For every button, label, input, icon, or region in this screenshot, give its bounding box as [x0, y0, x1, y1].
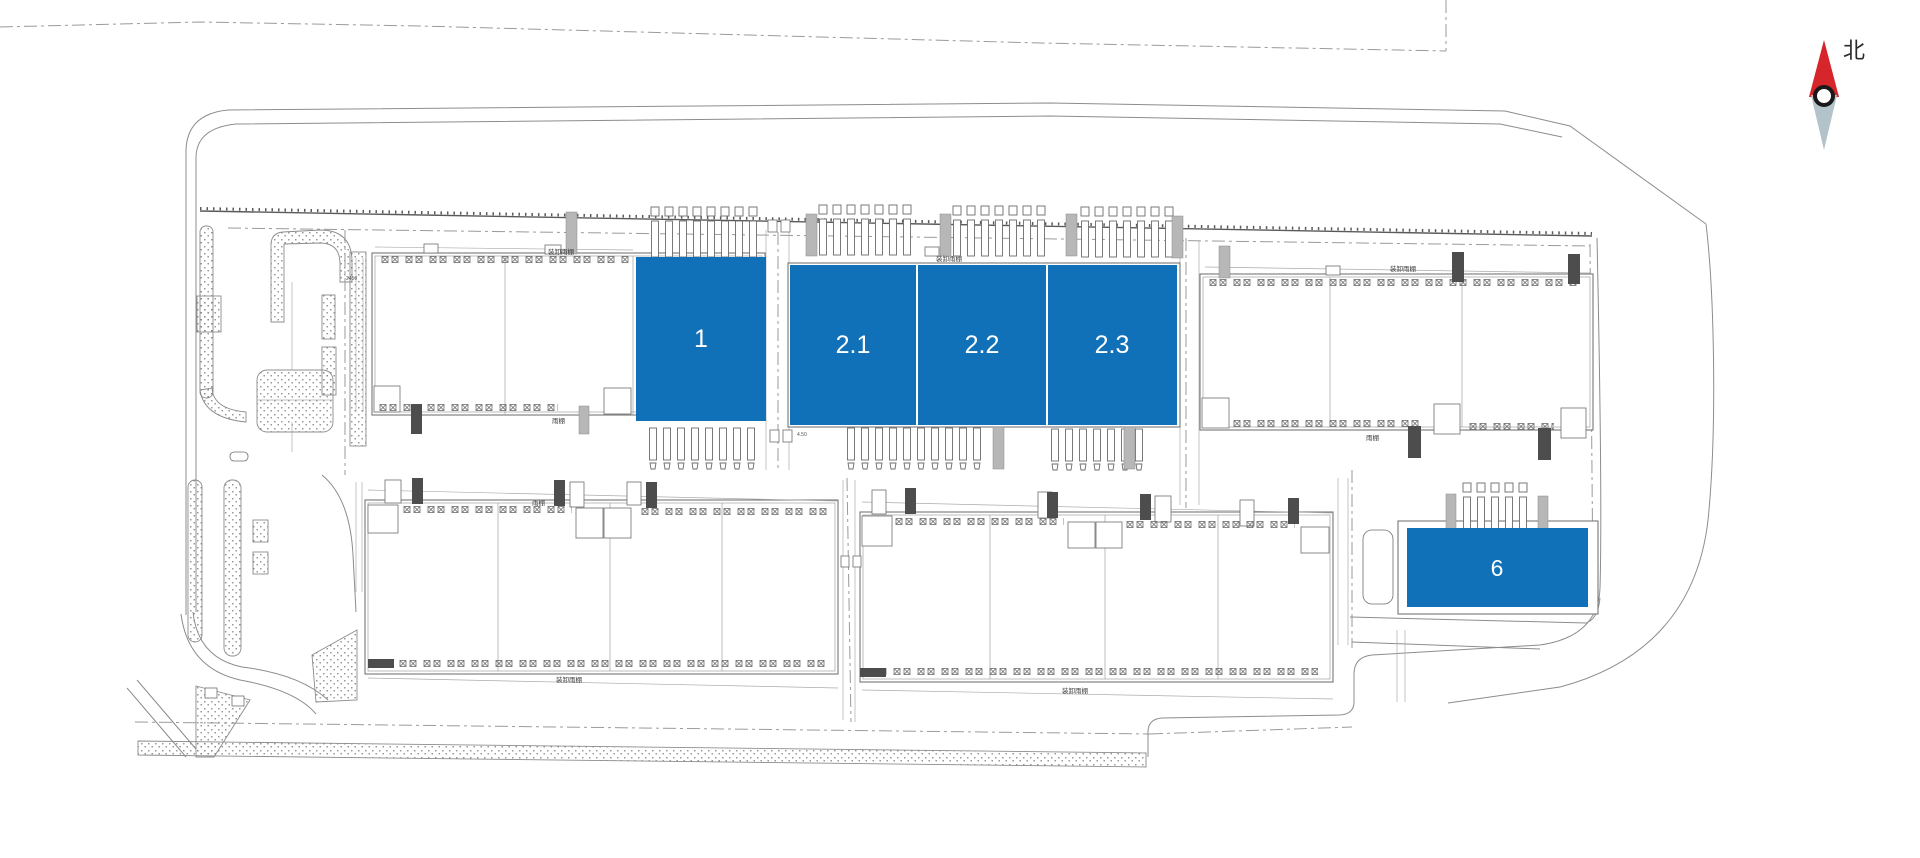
canopy-box — [1326, 266, 1340, 275]
dock-strip — [380, 255, 630, 264]
site-plan-canvas: 1 2.1 2.2 2.3 6 装卸雨棚 装卸雨棚 装卸雨棚 装卸雨棚 装卸雨棚… — [0, 0, 1920, 858]
truck-bay-north — [816, 204, 914, 256]
office — [1434, 404, 1460, 434]
office — [604, 508, 631, 538]
unit-2-1-label: 2.1 — [836, 331, 871, 359]
label-loading-canopy: 装卸雨棚 — [1390, 264, 1417, 273]
dock-strip — [1232, 419, 1422, 428]
truck-bay-south — [646, 427, 758, 473]
dock-strip — [374, 659, 829, 668]
greenbelt-strip-lower-inner — [224, 480, 241, 656]
stair-core — [570, 482, 584, 507]
label-loading-canopy: 装卸雨棚 — [548, 247, 575, 256]
green-wedge-east — [312, 630, 357, 702]
green-pad-lower-a — [253, 520, 268, 542]
dock-strip — [868, 667, 1318, 676]
truck-bay-north — [1078, 206, 1176, 258]
unit6-road-south — [1352, 642, 1540, 649]
canopy-box — [424, 244, 438, 253]
label-canopy: 雨棚 — [1366, 433, 1380, 442]
southwest-diagonal-b — [137, 680, 196, 749]
office — [1096, 522, 1122, 548]
truck-bay-south — [844, 427, 984, 473]
landscape-west — [181, 226, 366, 757]
stair-core — [1155, 496, 1171, 522]
dock-strip — [894, 517, 1064, 526]
office — [1068, 522, 1095, 548]
building-f-dock-wing — [1363, 530, 1393, 604]
office — [576, 508, 603, 538]
office — [1202, 398, 1229, 428]
building-c — [1200, 274, 1593, 430]
gate-booth-a — [205, 688, 217, 698]
unit-1-label: 1 — [694, 325, 708, 353]
office — [862, 516, 892, 546]
office — [604, 388, 631, 414]
truck-bay-unit6 — [1460, 482, 1530, 530]
south-property-dashline — [135, 722, 1150, 734]
south-greenbelt-strip — [138, 741, 1146, 767]
dock-strip — [378, 403, 558, 412]
stair-core — [841, 556, 849, 567]
unit-2-3-label: 2.3 — [1095, 331, 1130, 359]
unit6-road-north — [1350, 617, 1586, 623]
gate-pill — [230, 452, 248, 461]
gate-booth-b — [232, 696, 244, 706]
dimension-text: 4.50 — [797, 432, 807, 438]
green-pad-small — [197, 296, 221, 332]
greenbelt-strip-lower-outer — [188, 480, 202, 642]
green-pad-large — [257, 370, 333, 432]
dock-strip — [1125, 520, 1295, 529]
label-canopy: 雨棚 — [552, 416, 566, 425]
stair-core — [385, 480, 401, 503]
south-property-dashline-right — [1150, 727, 1352, 734]
green-strip-a — [322, 295, 335, 339]
office — [1561, 408, 1586, 438]
stair-core — [768, 220, 777, 232]
dock-strip — [402, 505, 572, 514]
truck-bay-north — [950, 205, 1048, 257]
office — [368, 505, 398, 533]
property-line-top — [0, 22, 1446, 51]
stair-core — [627, 482, 641, 505]
entry-road-arc-b — [193, 612, 328, 700]
compass-north-label: 北 — [1843, 38, 1865, 63]
canopy-box — [925, 247, 939, 256]
stair-core — [872, 490, 886, 514]
dock-strip — [640, 507, 830, 516]
label-canopy: 雨棚 — [532, 498, 546, 507]
stair-core — [781, 220, 790, 232]
label-loading-canopy: 装卸雨棚 — [936, 254, 963, 263]
green-pad-lower-b — [253, 552, 268, 574]
dimension-text: 2450 — [346, 276, 357, 282]
unit-2-2-label: 2.2 — [965, 331, 1000, 359]
road-centerline-3 — [847, 478, 851, 722]
green-island-hook — [271, 230, 352, 322]
truck-bay-north — [648, 206, 760, 258]
compass-ring — [1815, 87, 1833, 105]
stair-core — [770, 430, 779, 442]
entry-road-arc-a — [322, 475, 356, 612]
unit-6-label: 6 — [1491, 555, 1504, 581]
stair-core — [853, 556, 861, 567]
office — [1301, 527, 1329, 553]
stair-core — [783, 430, 792, 442]
greenbelt-hook-upper — [200, 388, 246, 422]
label-loading-canopy: 装卸雨棚 — [556, 675, 583, 684]
compass: 北 — [1809, 38, 1865, 150]
dock-strip — [1208, 278, 1578, 287]
site-plan-drawing: 1 2.1 2.2 2.3 6 装卸雨棚 装卸雨棚 装卸雨棚 装卸雨棚 装卸雨棚… — [0, 0, 1920, 858]
label-loading-canopy: 装卸雨棚 — [1062, 686, 1089, 695]
